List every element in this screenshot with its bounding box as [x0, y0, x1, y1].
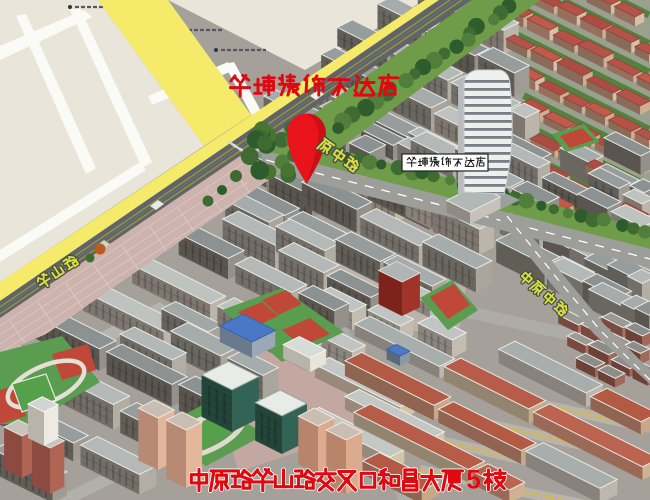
svg-text:5: 5 [466, 465, 481, 495]
